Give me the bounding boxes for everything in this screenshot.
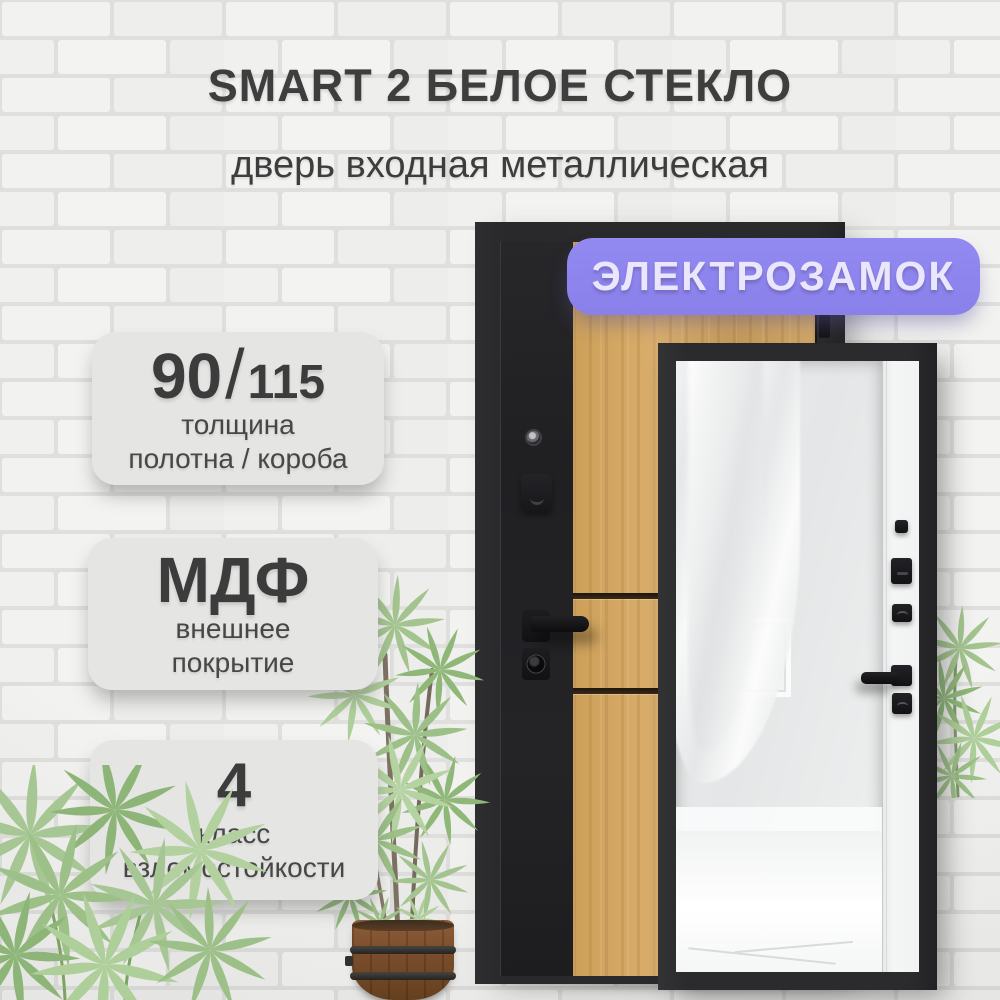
door-hinge [819,312,830,338]
electronic-lock-module [521,474,552,511]
baseboard-reflection [676,807,882,831]
thickness-leaf-value: 90 [151,346,222,407]
marble-vein [734,941,853,953]
barrel-metal-band [350,972,456,980]
barrel-rim [352,920,454,931]
peephole [525,429,542,446]
lock-keyhole-plate [892,604,912,622]
coating-caption-line1: внешнее [176,612,291,646]
coating-caption-line2: покрытие [172,646,295,680]
wooden-barrel-planter [352,920,454,1000]
thickness-caption-line2: полотна / короба [128,442,347,476]
upper-lock-case [891,558,912,584]
interior-door [658,343,937,990]
thickness-caption-line1: толщина [181,408,295,442]
exterior-handle-lever [531,616,589,632]
left-plant [0,765,285,1000]
barrel-clasp [345,956,353,966]
mirror-panel [676,361,882,972]
barrel-metal-band [350,946,456,954]
interior-handle-lever [861,672,897,684]
product-banner: SMART 2 БЕЛОЕ СТЕКЛО дверь входная метал… [0,0,1000,1000]
feature-card-coating: МДФ внешнее покрытие [88,538,378,690]
lock-indicator-button [895,520,908,533]
thickness-value: 90 / 115 [151,341,325,408]
badge-label: ЭЛЕКТРОЗАМОК [592,253,956,300]
coating-value: МДФ [157,548,310,612]
thumbturn-plate [892,693,912,714]
electronic-lock-badge: ЭЛЕКТРОЗАМОК [567,238,980,315]
product-title: SMART 2 БЕЛОЕ СТЕКЛО [0,60,1000,112]
floor-reflection [676,831,882,972]
thickness-separator: / [225,341,244,408]
product-subtitle: дверь входная металлическая [0,144,1000,187]
feature-card-thickness: 90 / 115 толщина полотна / короба [92,332,384,485]
thickness-frame-value: 115 [248,360,325,406]
